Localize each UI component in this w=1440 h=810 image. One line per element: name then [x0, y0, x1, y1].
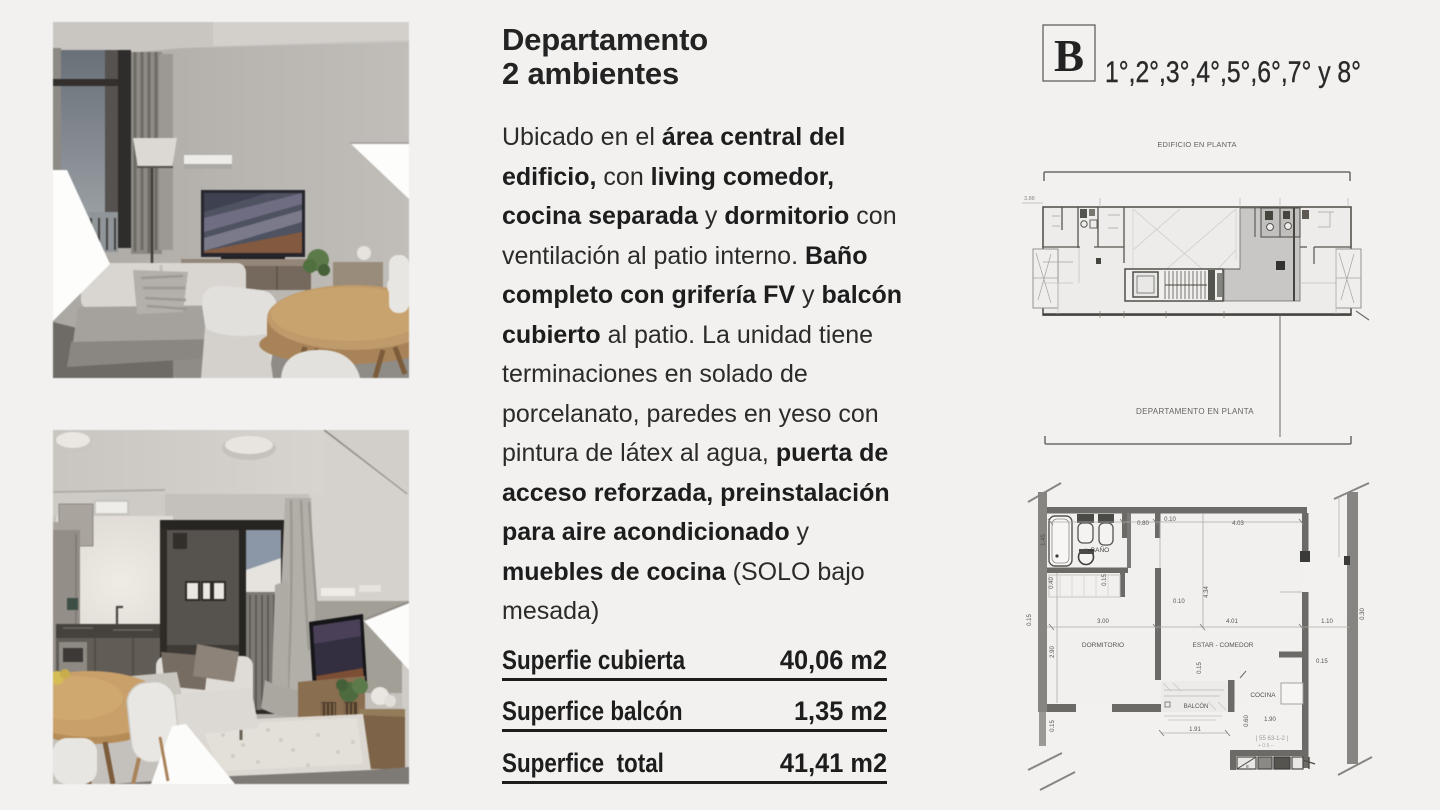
svg-text:3.00: 3.00 [1097, 619, 1109, 625]
svg-text:0.15: 0.15 [1027, 614, 1033, 626]
svg-text:+ 0.9 --: + 0.9 -- [1258, 743, 1274, 749]
svg-text:1.91: 1.91 [1189, 727, 1201, 733]
svg-text:DORMITORIO: DORMITORIO [1082, 642, 1124, 649]
svg-text:4.34: 4.34 [1204, 586, 1210, 598]
svg-text:1.45: 1.45 [1041, 534, 1047, 546]
svg-text:0.10: 0.10 [1173, 599, 1185, 605]
svg-text:ESTAR - COMEDOR: ESTAR - COMEDOR [1193, 642, 1254, 649]
svg-text:| 55 63-1-2 |: | 55 63-1-2 | [1256, 736, 1289, 742]
svg-text:0.15: 0.15 [1316, 659, 1328, 665]
svg-text:3.88: 3.88 [1024, 196, 1035, 202]
svg-text:0.15: 0.15 [1102, 574, 1108, 586]
svg-text:0.60: 0.60 [1244, 715, 1250, 727]
svg-text:2.90: 2.90 [1050, 646, 1056, 658]
svg-text:B: B [1054, 31, 1084, 81]
svg-text:0.80: 0.80 [1137, 521, 1149, 527]
svg-text:0.10: 0.10 [1164, 517, 1176, 523]
svg-text:1.10: 1.10 [1321, 619, 1333, 625]
svg-text:≡: ≡ [1246, 764, 1249, 770]
svg-text:0.15: 0.15 [1197, 662, 1203, 674]
svg-text:BALCÓN: BALCÓN [1184, 703, 1209, 710]
svg-text:EDIFICIO EN PLANTA: EDIFICIO EN PLANTA [1157, 140, 1236, 149]
svg-text:4.01: 4.01 [1226, 619, 1238, 625]
svg-text:0.15: 0.15 [1050, 720, 1056, 732]
svg-text:0.30: 0.30 [1360, 608, 1366, 620]
svg-text:DEPARTAMENTO EN PLANTA: DEPARTAMENTO EN PLANTA [1136, 407, 1254, 416]
svg-text:1°,2°,3°,4°,5°,6°,7° y 8°: 1°,2°,3°,4°,5°,6°,7° y 8° [1105, 56, 1361, 89]
svg-text:COCINA: COCINA [1250, 692, 1276, 699]
svg-text:4.03: 4.03 [1232, 521, 1244, 527]
svg-text:0.40: 0.40 [1049, 577, 1055, 589]
svg-text:1.90: 1.90 [1264, 717, 1276, 723]
